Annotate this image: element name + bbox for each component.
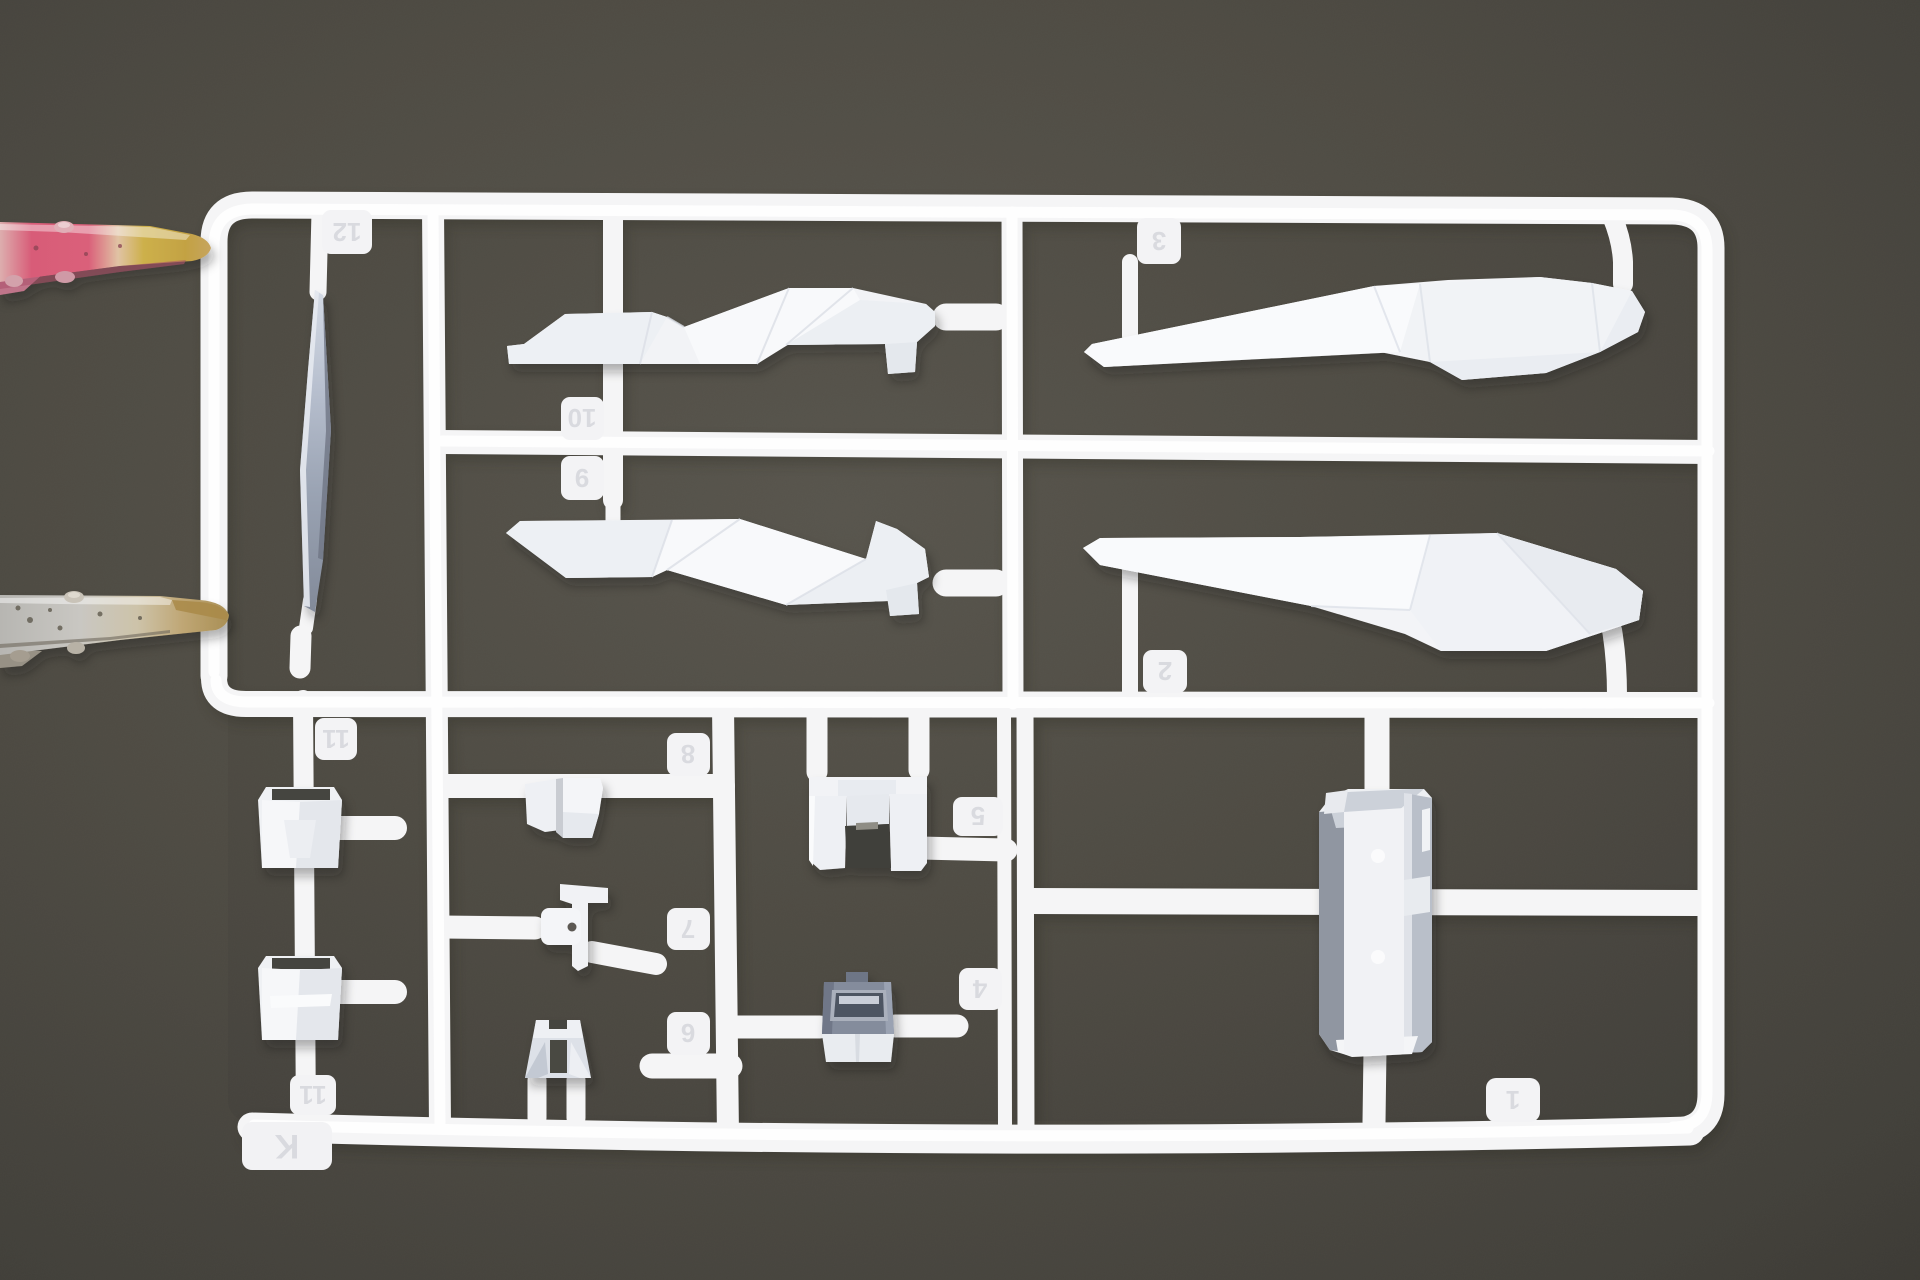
svg-text:6: 6 [681,1018,695,1048]
svg-text:K: K [274,1127,299,1165]
svg-text:11: 11 [322,724,350,754]
svg-text:8: 8 [681,739,695,769]
svg-text:5: 5 [971,801,985,831]
svg-text:4: 4 [972,974,987,1004]
svg-text:9: 9 [575,463,589,493]
svg-text:7: 7 [681,914,695,944]
svg-text:3: 3 [1152,226,1166,256]
svg-text:1: 1 [1506,1085,1520,1115]
svg-text:11: 11 [299,1080,327,1110]
svg-text:10: 10 [568,403,597,433]
svg-text:12: 12 [333,217,362,247]
svg-text:2: 2 [1158,656,1172,686]
